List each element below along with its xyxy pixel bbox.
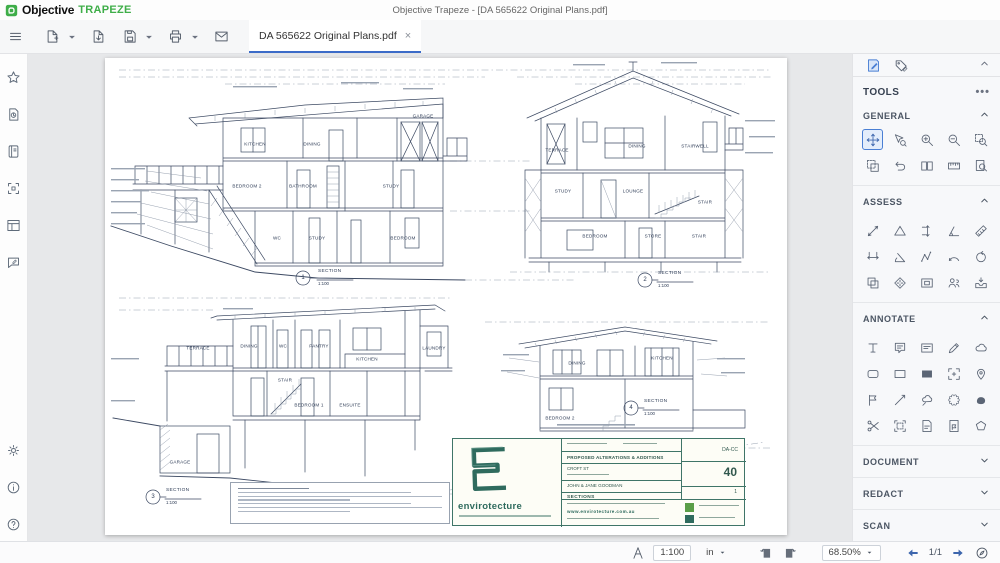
room-label: LAUNDRY	[422, 346, 445, 351]
notes-block	[230, 482, 450, 524]
rotate-page-left-icon	[759, 546, 773, 560]
cloud-callout-icon	[920, 393, 934, 407]
room-label: STUDY	[555, 189, 572, 194]
hamburger-icon	[8, 29, 23, 44]
tool-measure-horizontal[interactable]	[862, 246, 883, 267]
new-document-button[interactable]	[40, 25, 64, 49]
sticky-note-icon	[893, 341, 907, 355]
section-marker-scale: 1:100	[318, 281, 329, 286]
pencil-icon	[947, 341, 961, 355]
tool-calibrate[interactable]	[889, 272, 910, 293]
compass-icon	[975, 546, 989, 560]
assign-reviewer-icon	[947, 276, 961, 290]
scale-caliper-icon	[631, 546, 645, 560]
compare-documents-icon	[866, 276, 880, 290]
facing-pages-icon	[920, 159, 934, 173]
cut-region-icon	[866, 419, 880, 433]
section-marker-number: 2	[643, 277, 646, 283]
tool-measure-polyline[interactable]	[916, 246, 937, 267]
comment-icon	[6, 255, 21, 270]
tool-submit-review[interactable]	[970, 272, 991, 293]
measure-polyline-icon	[920, 250, 934, 264]
envirotecture-logo-icon	[459, 442, 517, 498]
left-sidebar	[0, 54, 28, 541]
room-label: KITCHEN	[356, 357, 378, 362]
tool-rectangle[interactable]	[889, 363, 910, 384]
main-toolbar: DA 565622 Original Plans.pdf ×	[0, 20, 1000, 54]
title-block: envirotecture PROPOSED ALTERATIONS & ADD…	[452, 438, 745, 526]
section-marker-scale: 1:100	[166, 500, 177, 505]
tool-page-search[interactable]	[970, 155, 991, 176]
section-header-redact[interactable]: REDACT	[853, 477, 1000, 509]
tool-pencil[interactable]	[943, 337, 964, 358]
annotated-document-icon	[866, 58, 881, 73]
tool-zoom-area[interactable]	[970, 129, 991, 150]
tool-polygon[interactable]	[970, 415, 991, 436]
scale-value: 1:100	[660, 547, 684, 558]
tool-measure-perpendicular[interactable]	[889, 246, 910, 267]
freehand-highlight-icon	[974, 393, 988, 407]
room-label: DINING	[628, 144, 645, 149]
measure-horizontal-icon	[866, 250, 880, 264]
info-button[interactable]	[5, 478, 23, 496]
measure-angle-icon	[947, 224, 961, 238]
tool-flag[interactable]	[862, 389, 883, 410]
zoom-in-icon	[920, 133, 934, 147]
room-label: BEDROOM	[582, 234, 607, 239]
room-label: BEDROOM 2	[545, 416, 574, 421]
zoom-value: 68.50%	[829, 547, 861, 558]
tool-typewriter[interactable]	[862, 337, 883, 358]
expand-corners-icon	[6, 181, 21, 196]
project-stage: DA-CC	[685, 447, 742, 453]
caret-down-icon	[718, 548, 727, 557]
room-label: KITCHEN	[651, 356, 673, 361]
tool-facing-pages[interactable]	[916, 155, 937, 176]
section-marker-scale: 1:100	[658, 283, 669, 288]
sheet-title: SECTIONS	[567, 495, 595, 500]
section-header-annotate[interactable]: ANNOTATE	[853, 302, 1000, 334]
zoom-area-icon	[974, 133, 988, 147]
rectangle-icon	[893, 367, 907, 381]
title-bar: Objective TRAPEZE Objective Trapeze - [D…	[0, 0, 1000, 20]
window-title: Objective Trapeze - [DA 565622 Original …	[0, 5, 1000, 16]
room-label: DINING	[303, 142, 320, 147]
thumbnails-button[interactable]	[5, 179, 23, 197]
status-bar: 1:100 in 68.50% 1/1	[0, 541, 1000, 563]
pin-icon	[974, 367, 988, 381]
select-zoom-icon	[893, 133, 907, 147]
tool-zoom-out[interactable]	[943, 129, 964, 150]
general-tool-grid	[853, 126, 1000, 185]
open-document-button[interactable]	[86, 25, 110, 49]
select-annotations-icon	[893, 419, 907, 433]
section-label: ASSESS	[863, 197, 903, 207]
tool-measure-circle[interactable]	[970, 246, 991, 267]
room-label: STAIR	[278, 378, 292, 383]
panel-header	[853, 54, 1000, 77]
room-label: TERRACE	[186, 346, 209, 351]
tool-zoom-in[interactable]	[916, 129, 937, 150]
document-clock-icon	[6, 107, 21, 122]
attach-note-icon	[920, 419, 934, 433]
tool-assign-reviewer[interactable]	[943, 272, 964, 293]
chevron-down-icon	[979, 519, 990, 530]
new-document-icon	[45, 29, 60, 44]
project-title: PROPOSED ALTERATIONS & ADDITIONS	[567, 455, 664, 460]
tool-revision-cloud[interactable]	[943, 389, 964, 410]
tool-cut-region[interactable]	[862, 415, 883, 436]
section-header-assess[interactable]: ASSESS	[853, 185, 1000, 217]
arrow-right-icon	[951, 546, 965, 560]
tool-pin[interactable]	[970, 363, 991, 384]
polygon-icon	[974, 419, 988, 433]
tool-polyline[interactable]	[889, 389, 910, 410]
client-name: JOHN & JANE GOODMAN	[567, 483, 622, 488]
tool-cloud-callout[interactable]	[916, 389, 937, 410]
chevron-up-icon	[979, 195, 990, 206]
unit-dropdown[interactable]: in	[699, 545, 733, 561]
tool-measure-area[interactable]	[889, 220, 910, 241]
chevron-up-icon	[979, 58, 990, 69]
caret-down-icon[interactable]	[188, 30, 202, 44]
section-header-document[interactable]: DOCUMENT	[853, 445, 1000, 477]
chevron-up-icon	[979, 109, 990, 120]
rotate-right-button[interactable]	[782, 546, 798, 560]
annotations-list-button[interactable]	[863, 55, 883, 75]
tool-attach-note[interactable]	[916, 415, 937, 436]
section-marker-scale: 1:100	[644, 411, 655, 416]
sheet-number: 40	[685, 465, 742, 479]
tool-pan[interactable]	[862, 129, 883, 150]
notebook-button[interactable]	[5, 142, 23, 160]
tool-compare-documents[interactable]	[862, 272, 883, 293]
caret-down-icon[interactable]	[65, 30, 79, 44]
tool-filled-rectangle[interactable]	[916, 363, 937, 384]
pan-icon	[866, 133, 880, 147]
print-button[interactable]	[163, 25, 187, 49]
help-button[interactable]	[5, 515, 23, 533]
tool-cloud[interactable]	[970, 337, 991, 358]
chevron-up-icon	[979, 312, 990, 323]
page-search-icon	[974, 159, 988, 173]
room-label: STORE	[645, 234, 662, 239]
document-page[interactable]: KITCHEN DINING GARAGE BEDROOM 2 BATHROOM…	[105, 58, 787, 535]
tags-button[interactable]	[891, 55, 911, 75]
room-label: GARAGE	[170, 460, 191, 465]
room-label: TERRACE	[545, 148, 568, 153]
chevron-down-icon	[979, 455, 990, 466]
tool-overlay-pages[interactable]	[916, 272, 937, 293]
toolbar-actions	[40, 25, 233, 49]
room-label: STAIR	[698, 200, 712, 205]
unit-value: in	[706, 547, 713, 558]
room-label: KITCHEN	[244, 142, 266, 147]
room-label: DINING	[240, 344, 257, 349]
room-label: PANTRY	[309, 344, 328, 349]
tool-sticky-note[interactable]	[889, 337, 910, 358]
project-address: CROFT ST	[567, 466, 589, 471]
section-label: DOCUMENT	[863, 457, 919, 467]
settings-button[interactable]	[5, 441, 23, 459]
zoom-dropdown[interactable]: 68.50%	[822, 545, 881, 561]
info-icon	[6, 480, 21, 495]
measure-area-icon	[893, 224, 907, 238]
measure-vertical-icon	[920, 224, 934, 238]
print-icon	[168, 29, 183, 44]
gear-icon	[6, 443, 21, 458]
room-label: STAIRWELL	[681, 144, 708, 149]
tools-title: TOOLS	[863, 87, 899, 98]
section-label: GENERAL	[863, 111, 911, 121]
page-indicator: 1/1	[929, 547, 942, 558]
filled-rectangle-icon	[920, 367, 934, 381]
room-label: ENSUITE	[339, 403, 360, 408]
tool-select-zoom[interactable]	[889, 129, 910, 150]
polyline-icon	[893, 393, 907, 407]
menu-button[interactable]	[2, 25, 28, 49]
assess-tool-grid	[853, 217, 1000, 302]
email-icon	[214, 29, 229, 44]
measure-length-icon	[866, 224, 880, 238]
certification-logo	[685, 503, 694, 512]
help-icon	[6, 517, 21, 532]
rotate-page-right-icon	[783, 546, 797, 560]
chevron-down-icon	[979, 487, 990, 498]
document-flag-icon	[947, 419, 961, 433]
email-button[interactable]	[209, 25, 233, 49]
revision-cloud-icon	[947, 393, 961, 407]
section-marker-number: 3	[151, 494, 154, 500]
actual-size-icon	[947, 159, 961, 173]
tool-freehand-highlight[interactable]	[970, 389, 991, 410]
tag-edit-icon	[894, 58, 909, 73]
snapshot-icon	[866, 159, 880, 173]
measure-arc-icon	[947, 250, 961, 264]
typewriter-icon	[866, 341, 880, 355]
undo-icon	[893, 159, 907, 173]
section-header-scan[interactable]: SCAN	[853, 509, 1000, 541]
layout-panel-icon	[6, 218, 21, 233]
room-label: DINING	[568, 361, 585, 366]
document-canvas[interactable]: KITCHEN DINING GARAGE BEDROOM 2 BATHROOM…	[28, 54, 852, 541]
revision-number: 1	[685, 489, 742, 495]
orientation-button[interactable]	[974, 546, 990, 560]
submit-review-icon	[974, 276, 988, 290]
section-label: REDACT	[863, 489, 904, 499]
overlay-pages-icon	[920, 276, 934, 290]
room-label: STUDY	[383, 184, 400, 189]
room-label: WC	[279, 344, 287, 349]
arrow-left-icon	[906, 546, 920, 560]
scale-ruler-icon	[974, 224, 988, 238]
annotate-tool-grid	[853, 334, 1000, 445]
caret-down-icon	[865, 548, 874, 557]
section-label: SCAN	[863, 521, 891, 531]
section-marker-label: SECTION	[644, 399, 667, 404]
text-box-icon	[920, 341, 934, 355]
caret-down-icon[interactable]	[142, 30, 156, 44]
next-page-button[interactable]	[950, 546, 966, 560]
room-label: BEDROOM 1	[294, 403, 323, 408]
tool-measure-vertical[interactable]	[916, 220, 937, 241]
firm-name: envirotecture	[458, 501, 522, 512]
tools-menu-button[interactable]: •••	[975, 86, 990, 98]
main-area: KITCHEN DINING GARAGE BEDROOM 2 BATHROOM…	[0, 54, 1000, 541]
tool-stamp-frame[interactable]	[943, 363, 964, 384]
room-label: WC	[273, 236, 281, 241]
measure-perpendicular-icon	[893, 250, 907, 264]
rotate-left-button[interactable]	[758, 546, 774, 560]
calibrate-icon	[893, 276, 907, 290]
brand-name: Objective	[22, 3, 74, 17]
section-marker-label: SECTION	[318, 269, 341, 274]
star-icon	[6, 70, 21, 85]
save-icon	[122, 29, 137, 44]
room-label: STAIR	[692, 234, 706, 239]
firm-website: www.envirotecture.com.au	[567, 509, 635, 514]
tool-select-annotations[interactable]	[889, 415, 910, 436]
tab-label: DA 565622 Original Plans.pdf	[259, 30, 397, 42]
previous-page-button[interactable]	[905, 546, 921, 560]
firm-tagline-bar	[459, 515, 551, 517]
panels-button[interactable]	[5, 216, 23, 234]
tool-text-box[interactable]	[916, 337, 937, 358]
app-brand: Objective TRAPEZE	[0, 3, 132, 17]
measure-circle-icon	[974, 250, 988, 264]
rounded-rectangle-icon	[866, 367, 880, 381]
tab-close-icon[interactable]: ×	[405, 30, 411, 42]
certification-logo	[685, 515, 694, 523]
open-document-icon	[91, 29, 106, 44]
objective-logo-icon	[5, 4, 18, 17]
tool-measure-angle[interactable]	[943, 220, 964, 241]
section-marker-number: 1	[301, 275, 304, 281]
tool-rounded-rectangle[interactable]	[862, 363, 883, 384]
tool-measure-length[interactable]	[862, 220, 883, 241]
scale-input[interactable]: 1:100	[653, 545, 691, 561]
comments-button[interactable]	[5, 253, 23, 271]
zoom-out-icon	[947, 133, 961, 147]
tool-actual-size[interactable]	[943, 155, 964, 176]
section-marker-number: 4	[629, 405, 632, 411]
brand-product: TRAPEZE	[78, 4, 131, 16]
room-label: BATHROOM	[289, 184, 317, 189]
app-window: Objective TRAPEZE Objective Trapeze - [D…	[0, 0, 1000, 563]
panel-collapse-button[interactable]	[979, 56, 990, 74]
tool-snapshot[interactable]	[862, 155, 883, 176]
stamp-frame-icon	[947, 367, 961, 381]
notebook-icon	[6, 144, 21, 159]
section-marker-label: SECTION	[166, 488, 189, 493]
section-marker-label: SECTION	[658, 271, 681, 276]
favorites-button[interactable]	[5, 68, 23, 86]
tool-scale-ruler[interactable]	[970, 220, 991, 241]
save-button[interactable]	[117, 25, 141, 49]
cloud-icon	[974, 341, 988, 355]
recent-documents-button[interactable]	[5, 105, 23, 123]
room-label: LOUNGE	[623, 189, 644, 194]
tool-document-flag[interactable]	[943, 415, 964, 436]
section-header-general[interactable]: GENERAL	[853, 102, 1000, 126]
section-label: ANNOTATE	[863, 314, 916, 324]
tools-panel: TOOLS ••• GENERAL ASSESS ANNOTATE DOCUME…	[852, 54, 1000, 541]
room-label: BEDROOM	[390, 236, 415, 241]
room-label: STUDY	[309, 236, 326, 241]
room-label: GARAGE	[413, 114, 434, 119]
tools-title-row: TOOLS •••	[853, 77, 1000, 102]
document-tab[interactable]: DA 565622 Original Plans.pdf ×	[249, 20, 421, 53]
tool-undo[interactable]	[889, 155, 910, 176]
flag-icon	[866, 393, 880, 407]
room-label: BEDROOM 2	[232, 184, 261, 189]
tool-measure-arc[interactable]	[943, 246, 964, 267]
